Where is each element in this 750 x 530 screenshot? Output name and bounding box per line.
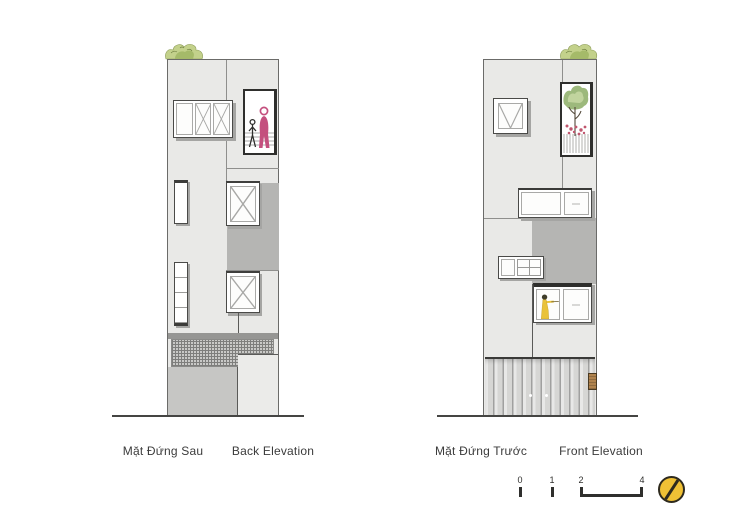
planter-opening: [560, 82, 593, 157]
window-pane: [230, 276, 256, 309]
figure-window: [533, 283, 592, 323]
narrow-window-lower: [174, 262, 188, 326]
ground-line-back: [112, 415, 304, 417]
wood-panel: [588, 373, 597, 390]
back-elevation-label-vi: Mặt Đứng Sau: [103, 444, 223, 458]
window-pane: [536, 289, 560, 320]
window-pane: [230, 186, 256, 222]
ground-line-front: [437, 415, 638, 417]
back-elevation-label-en: Back Elevation: [213, 444, 333, 458]
window-pane: [563, 289, 589, 320]
folding-doors: [485, 357, 595, 416]
balcony-opening: [243, 89, 277, 155]
woman-in-yellow-figure: [537, 290, 559, 319]
scale-tick: [551, 487, 554, 497]
window-pane: [564, 192, 589, 215]
casement-x-icon: [231, 187, 255, 221]
section-mark-circle-icon: [658, 476, 685, 503]
window-pane: [501, 259, 515, 276]
wide-window: [518, 188, 592, 218]
casement-x-icon: [196, 104, 211, 134]
window-pane: [213, 103, 230, 135]
facade-joint: [226, 168, 279, 169]
front-elevation-label-en: Front Elevation: [540, 444, 662, 458]
scale-tick: [519, 487, 522, 497]
scale-number-2: 2: [575, 475, 587, 485]
courtyard-tree: [562, 84, 590, 155]
window-handle-mark: [572, 203, 580, 204]
front-elevation-building: [483, 59, 597, 417]
back-elevation-building: [167, 59, 279, 417]
section-mark-line: [663, 478, 680, 503]
window-pane: [176, 103, 193, 135]
awning-v-icon: [499, 104, 522, 128]
facade-joint: [238, 313, 239, 334]
scale-number-4: 4: [636, 475, 648, 485]
window-pane: [521, 192, 561, 215]
roof-plants-back: [163, 41, 207, 60]
flower-cluster: [566, 125, 587, 136]
window-grid-panes: [517, 259, 541, 276]
triple-casement-window: [173, 100, 233, 138]
window-handle-mark: [572, 304, 580, 305]
casement-x-icon: [214, 104, 229, 134]
scale-number-1: 1: [546, 475, 558, 485]
window-pane: [195, 103, 212, 135]
window-pane: [498, 103, 523, 129]
front-elevation-label-vi: Mặt Đứng Trước: [421, 444, 541, 458]
casement-window-upper: [226, 181, 260, 226]
lower-wall-panel: [168, 367, 238, 416]
kitchen-window: [498, 256, 544, 279]
square-awning-window: [493, 98, 528, 134]
door-handle: [545, 394, 548, 397]
balcony-figures: [245, 91, 274, 153]
scale-bracket-end: [640, 487, 643, 497]
roof-plants-front: [556, 40, 600, 60]
scale-bracket-end: [580, 487, 583, 497]
door-handle: [529, 394, 532, 397]
lower-light-panel: [238, 354, 278, 416]
mother-figure: [259, 107, 270, 148]
scale-number-0: 0: [514, 475, 526, 485]
narrow-window-upper: [174, 180, 188, 224]
casement-x-icon: [231, 277, 255, 308]
scale-bracket-bar: [580, 494, 643, 497]
casement-window-lower: [226, 271, 260, 313]
railing-bars: [564, 134, 588, 153]
drawing-sheet: Mặt Đứng Sau Back Elevation Mặt Đứng Trư…: [0, 0, 750, 530]
